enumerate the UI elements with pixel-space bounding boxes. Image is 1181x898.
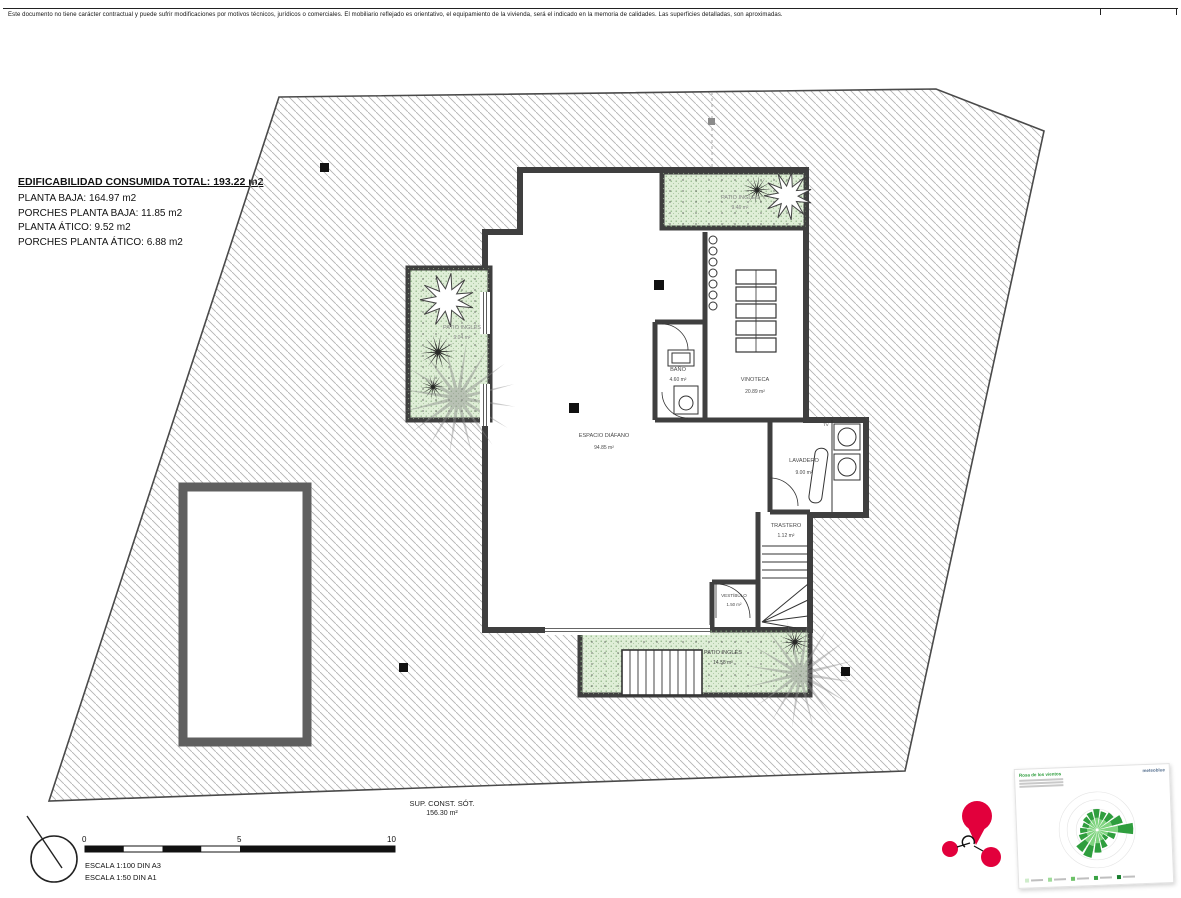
- basement-surface-title: SUP. CONST. SÓT.: [378, 799, 506, 808]
- label-patio-top: PATIO INGLÉS: [721, 194, 759, 201]
- location-pins: [942, 801, 1001, 867]
- basement-surface-label: SUP. CONST. SÓT. 156.30 m²: [378, 799, 506, 817]
- floorplan-sheet: { "disclaimer": "Este documento no tiene…: [0, 0, 1181, 898]
- label-tv: TV: [823, 422, 828, 427]
- area-bano: 4.60 m²: [670, 377, 687, 383]
- basement-surface-area: 156.30 m²: [378, 810, 506, 817]
- scale-bar: 0 5 10 ESCALA 1:100 DIN A3 ESCALA 1:50 D…: [82, 835, 396, 882]
- area-patio-left: 9.04 m²: [454, 335, 471, 341]
- scale-note-a1: ESCALA 1:50 DIN A1: [85, 873, 157, 882]
- area-trastero: 1.12 m²: [778, 533, 795, 539]
- label-vinoteca: VINOTECA: [741, 377, 770, 383]
- boundary-marker: [708, 118, 715, 125]
- scale-note-a3: ESCALA 1:100 DIN A3: [85, 861, 161, 870]
- windrose-chart: [1016, 783, 1171, 873]
- scale-tick-10: 10: [387, 835, 396, 844]
- scale-tick-5: 5: [237, 835, 242, 844]
- area-patio-top: 9.46 m²: [732, 205, 749, 211]
- pool: [183, 487, 307, 742]
- area-vestibulo: 1.50 m²: [727, 602, 742, 607]
- scale-tick-0: 0: [82, 835, 87, 844]
- label-bano: BAÑO: [670, 366, 687, 373]
- label-patio-left: PATIO INGLÉS: [443, 324, 481, 331]
- area-espacio: 94.85 m²: [594, 445, 614, 451]
- area-lavadero: 9.00 m²: [796, 470, 813, 476]
- windrose-brand: meteoblue: [1142, 767, 1165, 773]
- area-vinoteca: 20.89 m²: [745, 389, 765, 395]
- label-vestibulo: VESTÍBULO: [721, 592, 747, 598]
- label-patio-bottom: PATIO INGLÉS: [704, 649, 742, 656]
- label-trastero: TRASTERO: [771, 523, 802, 529]
- label-lavadero: LAVADERO: [789, 458, 819, 464]
- exterior-stair-grate: [622, 650, 702, 695]
- patio-bottom: [580, 630, 810, 695]
- label-espacio: ESPACIO DIÁFANO: [579, 432, 630, 439]
- area-patio-bottom: 14.58 m²: [713, 660, 733, 666]
- floorplan-drawing: ESPACIO DIÁFANO 94.85 m² BAÑO 4.60 m² VI…: [0, 0, 1181, 898]
- windrose-legend: [1019, 872, 1173, 884]
- windrose-card: Rosa de los vientos meteoblue: [1014, 763, 1174, 889]
- north-indicator: [27, 816, 77, 882]
